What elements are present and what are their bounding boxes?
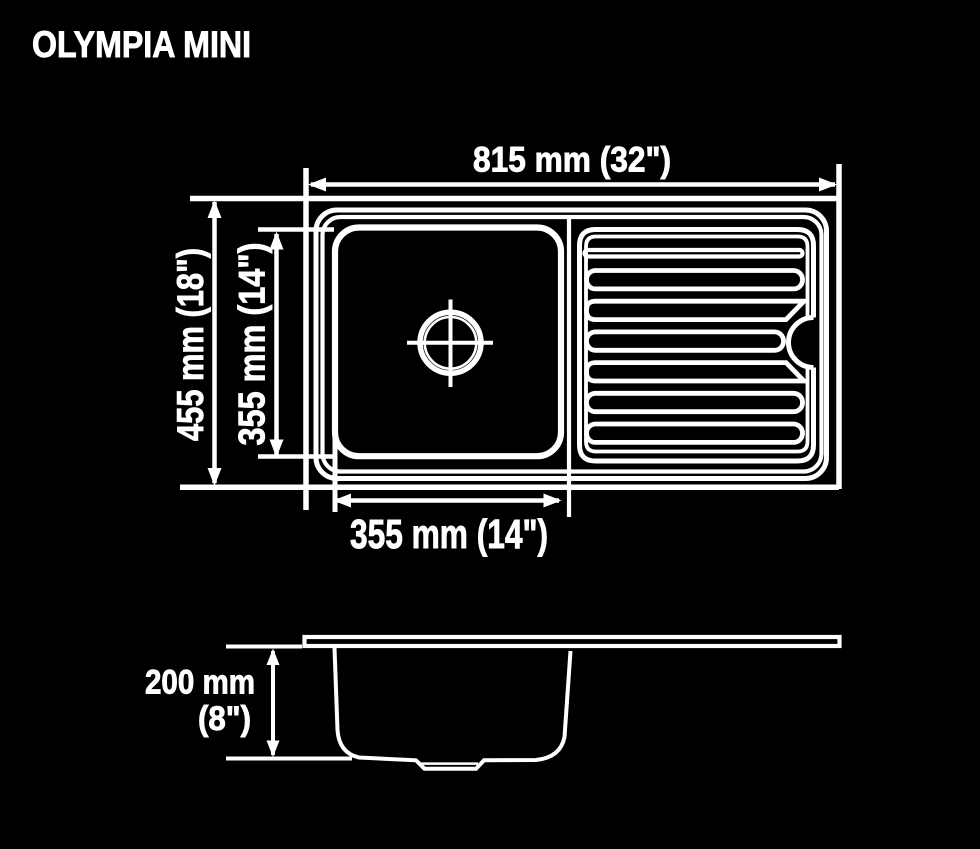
svg-text:355 mm (14"): 355 mm (14") xyxy=(350,511,548,557)
svg-text:815 mm (32"): 815 mm (32") xyxy=(473,141,671,180)
svg-text:455 mm (18"): 455 mm (18") xyxy=(170,248,211,441)
svg-text:OLYMPIA MINI: OLYMPIA MINI xyxy=(32,24,251,65)
svg-text:355 mm (14"): 355 mm (14") xyxy=(232,243,273,446)
svg-text:(8"): (8") xyxy=(198,700,251,738)
svg-text:200 mm: 200 mm xyxy=(145,664,255,702)
